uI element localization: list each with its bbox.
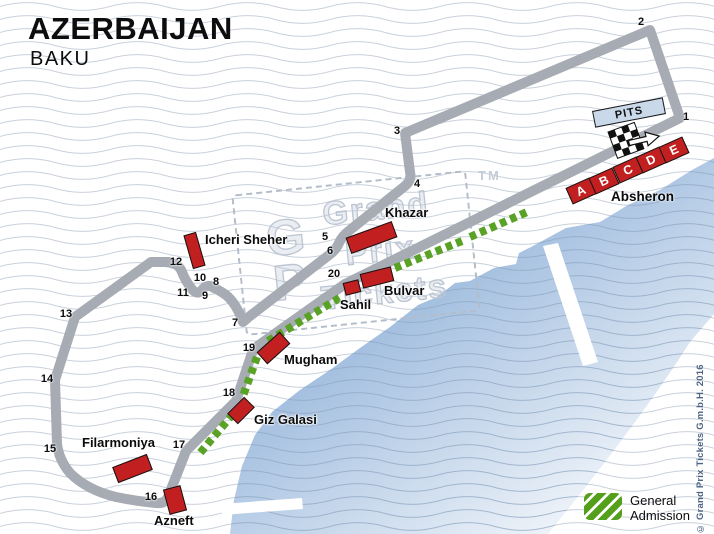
turn-number-19: 19: [243, 342, 255, 354]
turn-number-14: 14: [41, 373, 53, 385]
turn-number-5: 5: [322, 231, 328, 243]
pits-label: PITS: [614, 104, 644, 121]
turn-number-13: 13: [60, 308, 72, 320]
track-layer: [0, 0, 714, 534]
turn-number-6: 6: [327, 245, 333, 257]
turn-number-8: 8: [213, 276, 219, 288]
baku-circuit-map: G P Grand Prix Tickets TM: [0, 0, 714, 534]
grandstand-label-mugham: Mugham: [284, 352, 337, 367]
turn-number-18: 18: [223, 387, 235, 399]
general-admission-legend-swatch: [584, 493, 622, 520]
turn-number-10: 10: [194, 272, 206, 284]
turn-number-9: 9: [202, 290, 208, 302]
turn-number-7: 7: [232, 317, 238, 329]
grandstand-label-icheri-sheher: Icheri Sheher: [205, 232, 287, 247]
map-title: AZERBAIJAN: [28, 11, 233, 47]
grandstand-label-absheron: Absheron: [611, 189, 674, 204]
turn-number-3: 3: [394, 125, 400, 137]
turn-number-15: 15: [44, 443, 56, 455]
grandstand-label-filarmoniya: Filarmoniya: [82, 435, 155, 450]
legend-line2: Admission: [630, 508, 690, 523]
race-track-path: [55, 30, 680, 503]
general-admission-legend-label: General Admission: [630, 493, 690, 523]
copyright-notice: © Grand Prix Tickets G.m.b.H. 2016: [695, 330, 706, 534]
legend-line1: General: [630, 493, 690, 508]
grandstand-label-bulvar: Bulvar: [384, 283, 424, 298]
turn-number-20: 20: [328, 268, 340, 280]
turn-number-17: 17: [173, 439, 185, 451]
grandstand-label-giz-galasi: Giz Galasi: [254, 412, 317, 427]
turn-number-16: 16: [145, 491, 157, 503]
turn-number-12: 12: [170, 256, 182, 268]
grandstand-label-sahil: Sahil: [340, 297, 371, 312]
turn-number-2: 2: [638, 16, 644, 28]
map-subtitle: BAKU: [30, 48, 90, 71]
turn-number-11: 11: [177, 287, 189, 299]
turn-number-4: 4: [414, 178, 420, 190]
grandstand-label-khazar: Khazar: [385, 205, 428, 220]
grandstand-label-azneft: Azneft: [154, 513, 194, 528]
turn-number-1: 1: [683, 111, 689, 123]
